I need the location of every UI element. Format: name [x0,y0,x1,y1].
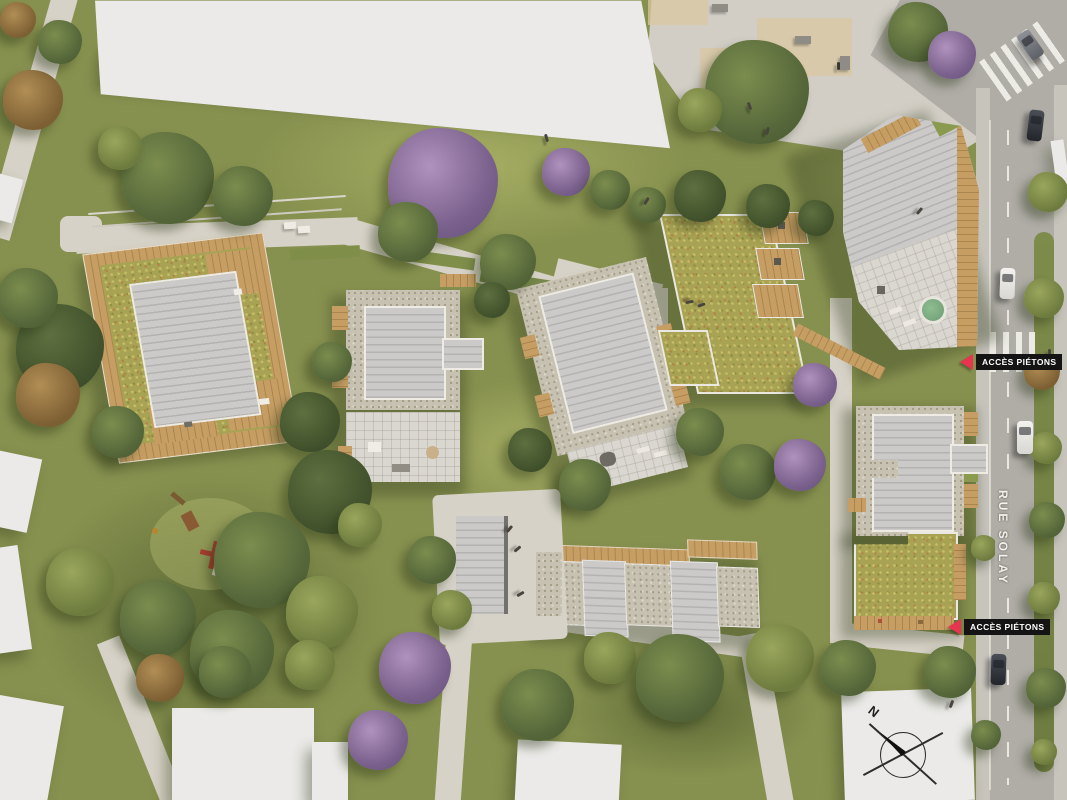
tree [0,2,36,38]
tree [676,408,724,456]
car [1017,421,1033,454]
tree [3,70,63,130]
car-windshield [1030,115,1042,124]
tree [408,536,456,584]
plaza-paving-accent [648,0,708,25]
wood-balcony [964,484,978,508]
access-arrow-icon [960,354,973,370]
tree [474,282,510,318]
tree [502,669,574,741]
car [990,654,1006,686]
deck-chair [878,619,882,623]
access-pietons-label-bottom: ACCÈS PIÉTONS [948,619,1050,635]
building-east-residence [850,400,982,542]
bench [795,36,811,44]
tree [92,406,144,458]
tree [584,632,636,684]
tree [1029,502,1065,538]
gravel-roof [624,563,674,627]
tree [820,640,876,696]
terrace-furniture [774,258,781,265]
terrace-furniture [877,286,885,294]
spring-rider [152,528,158,534]
access-arrow-icon [948,619,961,635]
terrace-furniture [259,398,270,405]
tree [286,576,358,648]
tree-flowering [793,363,837,407]
hot-tub [919,296,947,324]
car-windshield [1021,34,1035,47]
existing-building [0,691,64,800]
gray-ribbed-roof [582,560,629,638]
wood-deck [854,616,954,630]
tree [136,654,184,702]
gray-ribbed-roof [670,561,721,643]
building-rowhouses [533,542,761,642]
existing-building [514,739,622,800]
bench [298,226,310,234]
access-label-text: ACCÈS PIÉTONS [964,619,1050,635]
existing-building [172,708,314,800]
building-centerwest-residence [340,288,468,486]
tree [636,634,724,722]
tree [971,535,997,561]
tree-flowering [348,710,408,770]
wood-balcony [848,498,866,512]
tree [338,503,382,547]
tree [1031,739,1057,765]
existing-building [0,545,32,656]
tree [924,646,976,698]
car-windshield [993,660,1004,668]
tree [971,720,1001,750]
street-name-label: RUE SOLAY [995,484,1011,592]
tree [98,126,142,170]
bench [284,222,296,230]
grass-verge [290,245,361,261]
tree [559,459,611,511]
tree [630,187,666,223]
road-center-dashed-line [1007,130,1009,785]
car [999,268,1015,300]
tree-flowering [542,148,590,196]
tree [16,363,80,427]
tree [120,580,196,656]
tree [678,88,722,132]
tree [1024,278,1064,318]
tree [798,200,834,236]
wood-balcony [964,412,978,436]
tree [674,170,726,222]
gray-ribbed-roof [364,306,446,400]
tree [38,20,82,64]
car-windshield [1019,427,1031,435]
tree [378,202,438,262]
roof-wing [442,338,484,370]
wood-balcony-strip [954,544,966,600]
tree [746,624,814,692]
wood-balcony [332,306,348,330]
terrace-furniture [392,464,410,472]
roof-notch [872,460,898,478]
access-pietons-label-top: ACCÈS PIÉTONS [960,354,1062,370]
north-compass-icon: N [858,702,953,797]
tree [1030,432,1062,464]
roof-wing [950,444,988,474]
tree [285,640,335,690]
tree [432,590,472,630]
existing-building [312,742,348,800]
wood-roof-terrace [752,284,804,318]
access-label-text: ACCÈS PIÉTONS [976,354,1062,370]
vegetated-roof [854,532,958,620]
terrace-furniture [184,421,193,427]
parasol [426,446,439,459]
terrace-furniture [233,288,242,295]
tree [705,40,809,144]
tree [1026,668,1066,708]
tree-flowering [379,632,451,704]
compass-north-letter: N [865,703,882,721]
tree [0,268,58,328]
gravel-pad [536,552,562,616]
tree [213,166,273,226]
tree [1028,172,1067,212]
tree-flowering [928,31,976,79]
tree [199,646,251,698]
wood-deck [687,539,758,559]
deck-chair [918,620,923,624]
tree [590,170,630,210]
tree [280,392,340,452]
terrace-furniture [368,442,381,452]
tree [720,444,776,500]
tree [508,428,552,472]
tree [312,342,352,382]
bench [840,56,850,70]
site-plan-canvas: ACCÈS PIÉTONS ACCÈS PIÉTONS RUE SOLAY N [0,0,1067,800]
building-southeast-green-roof [848,528,966,632]
balcony-planter [964,474,978,482]
tree-flowering [774,439,826,491]
wood-balcony [440,274,476,287]
tree [746,184,790,228]
gravel-roof [716,566,760,628]
bench [712,4,728,12]
tree [1028,582,1060,614]
car-windshield [1002,274,1013,282]
road-edge-line [989,120,991,790]
tree [46,548,114,616]
